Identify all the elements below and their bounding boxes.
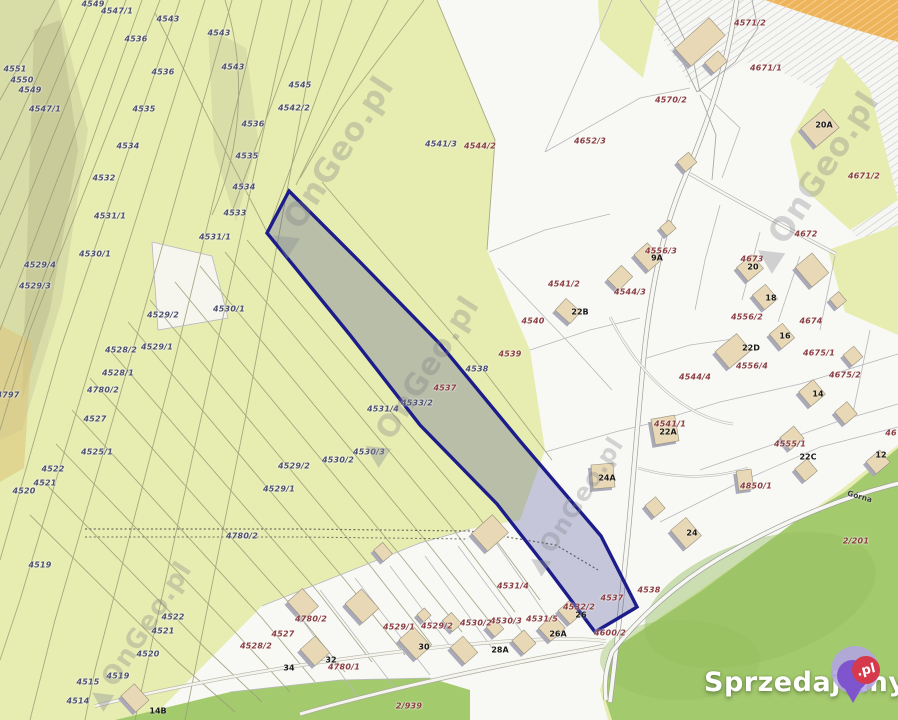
building <box>591 463 615 489</box>
building <box>651 415 679 445</box>
logo-suffix: .pl <box>855 660 877 679</box>
sprzedajemy-logo: Sprzedajemy .pl <box>700 645 898 720</box>
map-canvas[interactable]: 45494547/1454345434536455145364543455045… <box>0 0 898 720</box>
building <box>736 469 754 491</box>
map-graphics <box>0 0 898 720</box>
logo-pin-tail <box>845 689 861 703</box>
